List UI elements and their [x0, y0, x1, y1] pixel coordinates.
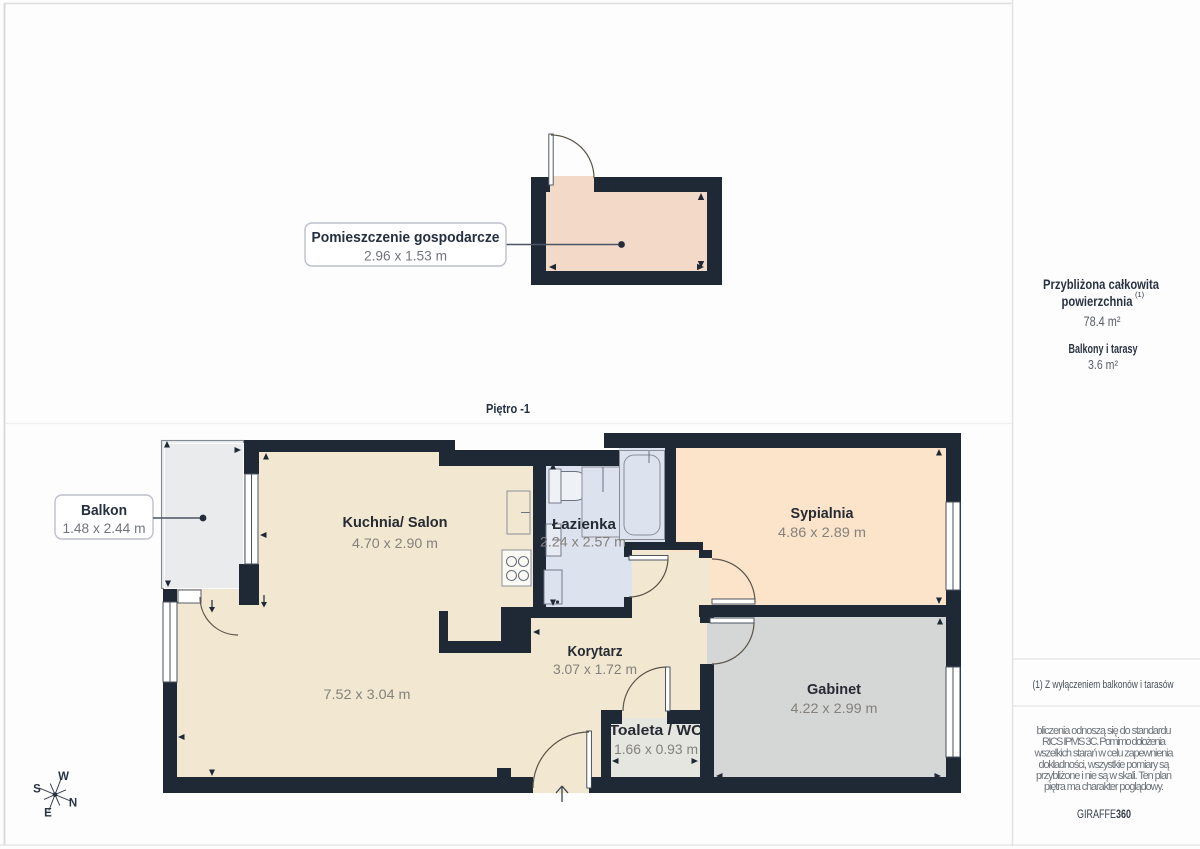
svg-text:1.48 x 2.44 m: 1.48 x 2.44 m	[63, 521, 146, 536]
svg-text:Sypialnia: Sypialnia	[791, 505, 855, 522]
svg-text:1.66 x 0.93 m: 1.66 x 0.93 m	[614, 741, 698, 757]
svg-text:78.4 m²: 78.4 m²	[1084, 314, 1121, 329]
svg-text:S: S	[33, 784, 41, 796]
svg-text:N: N	[69, 798, 77, 810]
svg-text:Balkon: Balkon	[81, 503, 127, 519]
svg-text:Łazienka: Łazienka	[552, 516, 617, 533]
svg-text:Korytarz: Korytarz	[568, 643, 623, 660]
svg-text:7.52 x 3.04 m: 7.52 x 3.04 m	[324, 686, 411, 702]
svg-text:2.24 x 2.57 m: 2.24 x 2.57 m	[540, 534, 626, 550]
svg-text:(1) Z wyłączeniem balkonów i t: (1) Z wyłączeniem balkonów i tarasów	[1033, 679, 1174, 691]
svg-text:W: W	[58, 771, 69, 783]
svg-text:Piętro -1: Piętro -1	[486, 401, 530, 416]
svg-text:4.70 x 2.90 m: 4.70 x 2.90 m	[352, 535, 438, 551]
svg-text:4.86 x 2.89 m: 4.86 x 2.89 m	[778, 524, 866, 540]
svg-text:Balkony i tarasy: Balkony i tarasy	[1069, 341, 1139, 356]
svg-text:3.07 x 1.72 m: 3.07 x 1.72 m	[553, 661, 637, 677]
svg-text:piętra ma charakter poglądowy.: piętra ma charakter poglądowy.	[1044, 781, 1164, 793]
svg-text:2.96 x 1.53 m: 2.96 x 1.53 m	[364, 249, 447, 264]
svg-text:powierzchnia: powierzchnia	[1062, 293, 1133, 309]
svg-text:Gabinet: Gabinet	[807, 681, 861, 698]
svg-text:Toaleta / WC: Toaleta / WC	[610, 722, 703, 739]
svg-text:wszelkich starań w celu zapewn: wszelkich starań w celu zapewnienia	[1034, 748, 1174, 760]
svg-text:GIRAFFE360: GIRAFFE360	[1077, 807, 1131, 821]
svg-text:4.22 x 2.99 m: 4.22 x 2.99 m	[791, 700, 878, 716]
svg-text:RICS IPMS 3C. Pomimo dołożenia: RICS IPMS 3C. Pomimo dołożenia	[1042, 736, 1166, 748]
svg-text:Kuchnia/ Salon: Kuchnia/ Salon	[343, 514, 448, 531]
svg-text:(1): (1)	[1135, 290, 1145, 299]
svg-text:Pomieszczenie gospodarcze: Pomieszczenie gospodarcze	[312, 230, 500, 246]
svg-text:E: E	[44, 808, 52, 820]
svg-text:3.6 m²: 3.6 m²	[1088, 357, 1119, 372]
